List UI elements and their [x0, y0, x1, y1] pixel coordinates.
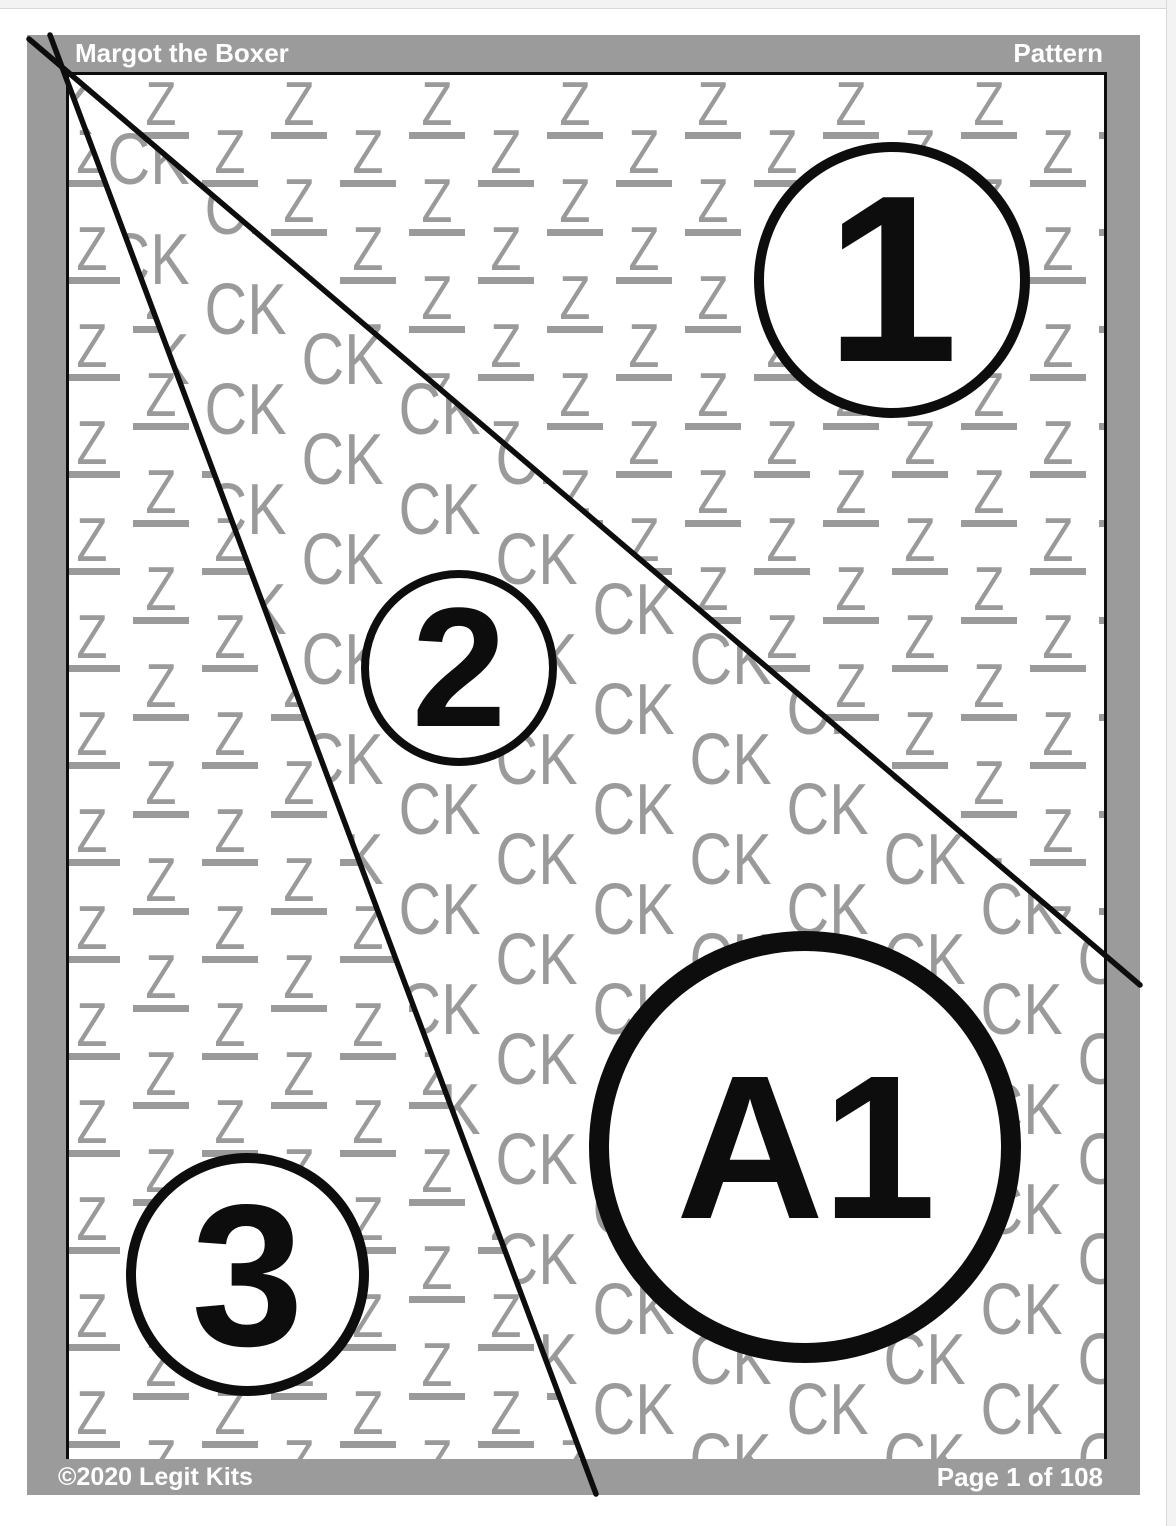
brand-name: Legit Kits	[139, 1463, 253, 1492]
page-edge-top	[0, 0, 1176, 9]
piece-label-2: 2	[361, 570, 557, 766]
footer-left: ©2020 Legit Kits	[58, 1459, 253, 1495]
page-number: Page 1 of 108	[937, 1459, 1103, 1495]
piece-number: 2	[412, 583, 507, 753]
piece-label-3: 3	[126, 1153, 369, 1396]
page: { "header": { "title": "Margot the Boxer…	[0, 0, 1176, 1526]
section-label-a1: A1	[589, 931, 1021, 1363]
doc-type-label: Pattern	[1013, 35, 1103, 72]
piece-number: 3	[191, 1174, 303, 1376]
piece-label-1: 1	[754, 142, 1030, 418]
section-code: A1	[676, 1045, 934, 1250]
piece-number: 1	[826, 161, 958, 399]
pattern-title: Margot the Boxer	[75, 35, 289, 72]
copyright-text: ©2020	[58, 1463, 132, 1492]
page-edge-right	[1166, 0, 1176, 1526]
